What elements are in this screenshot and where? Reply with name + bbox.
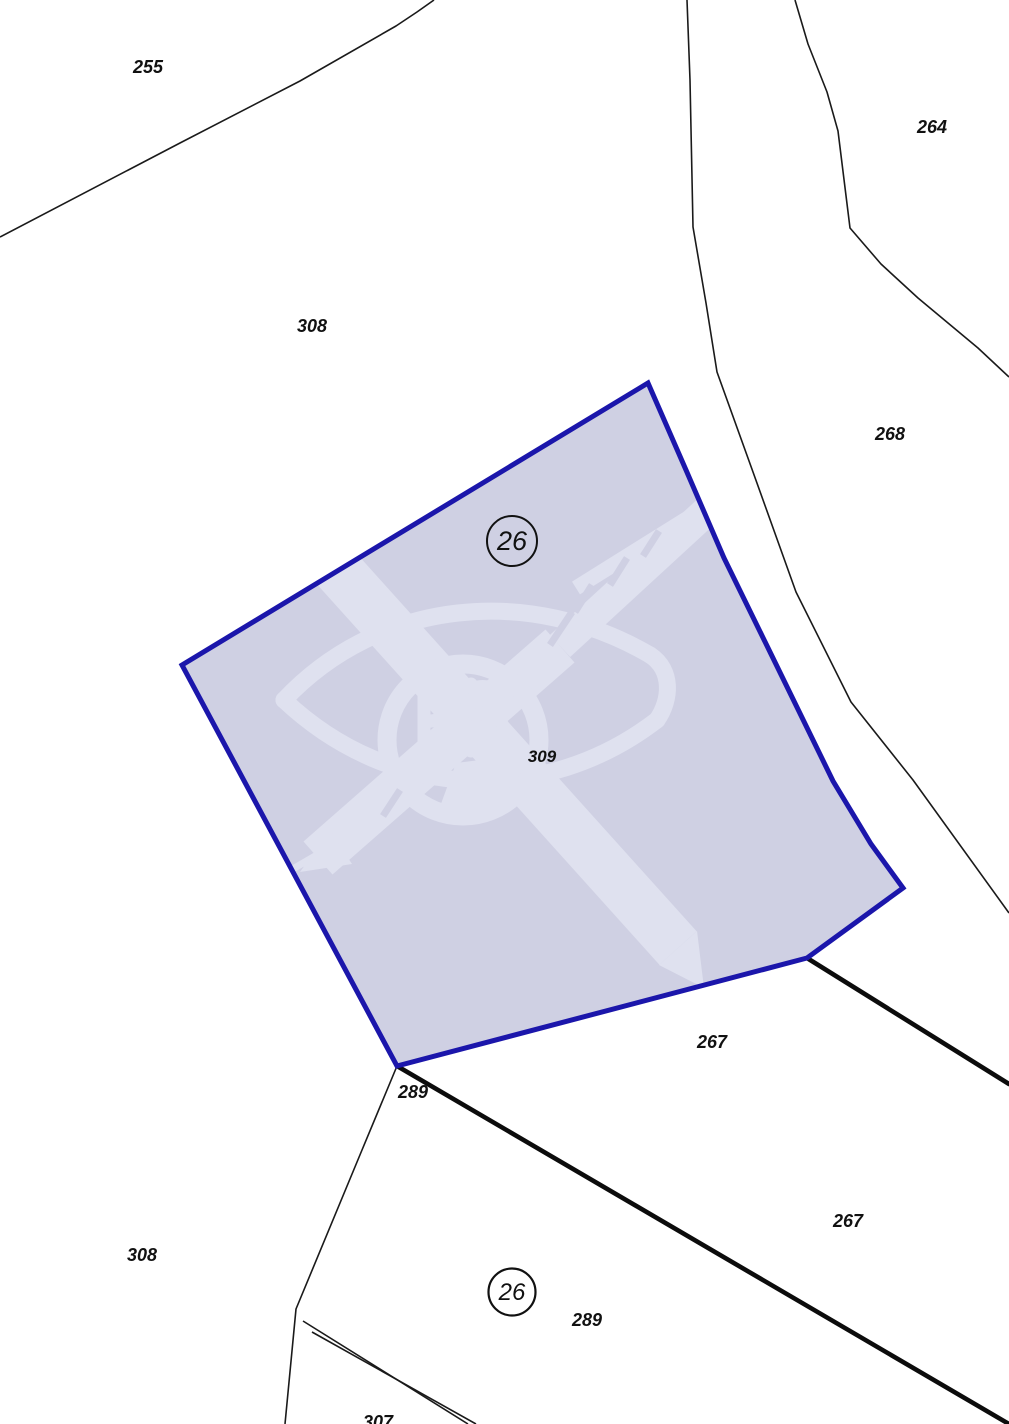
boundary-289-267 (397, 1066, 1009, 1424)
parcel-label-255: 255 (132, 57, 164, 77)
map-svg[interactable]: 2552643082683092672892673082893072626 (0, 0, 1009, 1424)
circled-number-text-1: 26 (498, 1279, 526, 1306)
parcel-label-289: 289 (397, 1082, 428, 1102)
watermark-letter-h-bar (424, 718, 453, 722)
boundary-267-north (807, 958, 1009, 1084)
circled-number-text-0: 26 (496, 526, 528, 556)
parcel-label-307: 307 (363, 1412, 394, 1424)
parcel-label-264: 264 (916, 117, 947, 137)
boundary-255-308 (0, 0, 434, 237)
circled-number-1: 26 (489, 1269, 536, 1316)
watermark-quill-shaft (150, 852, 322, 952)
parcel-label-268: 268 (874, 424, 905, 444)
boundary-289-307-lower (312, 1332, 476, 1424)
parcel-label-309: 309 (528, 747, 557, 766)
parcel-label-267: 267 (832, 1211, 864, 1231)
parcel-label-267: 267 (696, 1032, 728, 1052)
cadastral-map-canvas[interactable]: 2552643082683092672892673082893072626 (0, 0, 1009, 1424)
parcel-label-308: 308 (127, 1245, 157, 1265)
boundary-corridor-east-264 (795, 0, 1009, 377)
parcel-label-289: 289 (571, 1310, 602, 1330)
parcel-label-308: 308 (297, 316, 327, 336)
